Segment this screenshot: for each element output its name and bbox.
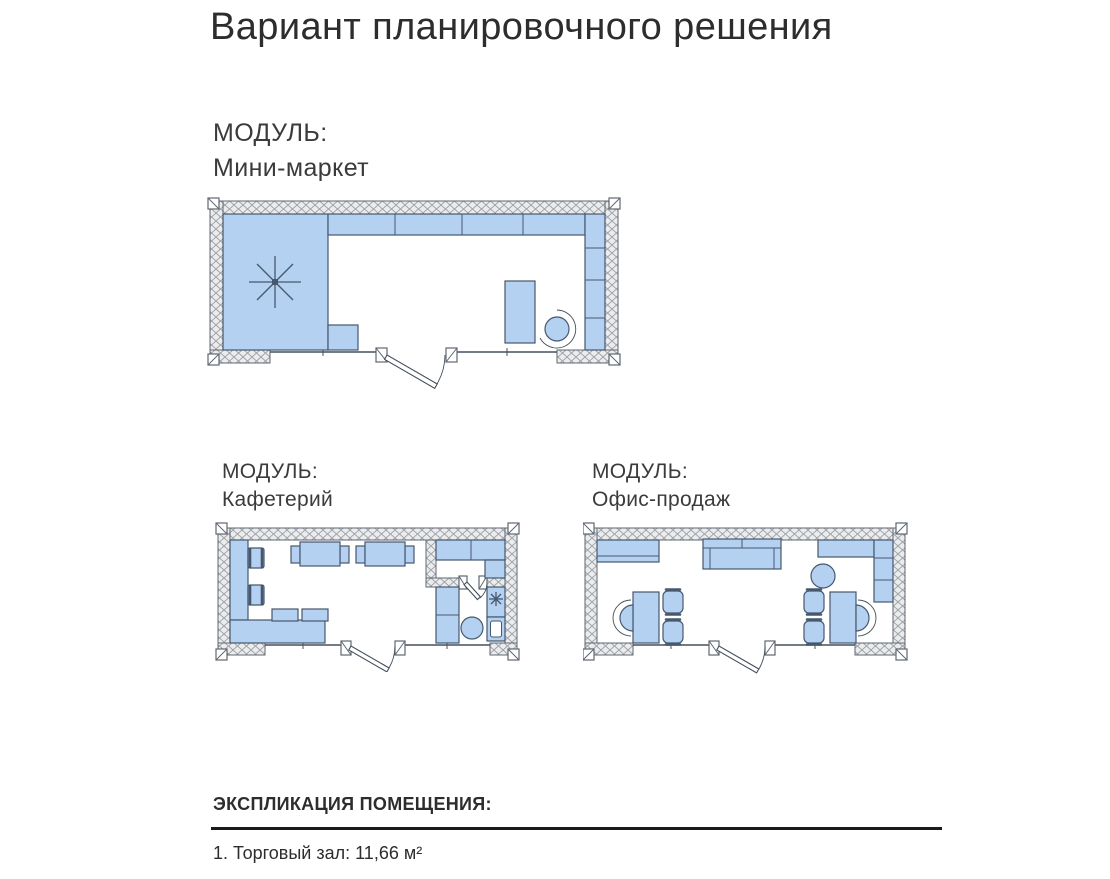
- bar-chair: [248, 585, 264, 605]
- entrance-door: [376, 348, 457, 388]
- explication-item: 1. Торговый зал: 11,66 м²: [213, 843, 422, 864]
- kitchen-counter-top: [436, 540, 505, 578]
- module-label-mini-market: МОДУЛЬ: Мини-маркет: [213, 116, 369, 186]
- visitor-chair: [804, 620, 824, 645]
- cashier-chair: [540, 310, 576, 348]
- explication-heading: ЭКСПЛИКАЦИЯ ПОМЕЩЕНИЯ:: [213, 794, 492, 815]
- shelving-right: [585, 214, 605, 350]
- entrance-door: [341, 641, 405, 672]
- coffee-table: [811, 564, 835, 588]
- wall-cabinet: [597, 540, 659, 562]
- visitor-chair: [804, 590, 824, 615]
- sofa: [703, 539, 781, 569]
- cafe-table: [291, 542, 349, 566]
- floor-plan-cafeteria: [215, 522, 525, 672]
- shelving-top: [328, 214, 585, 235]
- module-prefix: МОДУЛЬ:: [222, 458, 333, 486]
- entrance-door: [709, 641, 775, 673]
- module-prefix: МОДУЛЬ:: [213, 116, 369, 151]
- bar-chair: [248, 548, 264, 568]
- stool: [302, 609, 328, 621]
- floor-plan-mini-market: [207, 197, 621, 397]
- sink: [487, 617, 505, 641]
- manager-desk-left: [613, 590, 683, 645]
- light-fixture-symbol: [489, 592, 503, 606]
- stool: [272, 609, 298, 621]
- module-name: Офис-продаж: [592, 486, 730, 514]
- module-name: Мини-маркет: [213, 151, 369, 186]
- visitor-chair: [663, 590, 683, 615]
- kitchen-table: [461, 617, 483, 639]
- counter-block: [328, 325, 358, 350]
- module-label-sales-office: МОДУЛЬ: Офис-продаж: [592, 458, 730, 514]
- office-chair: [856, 605, 869, 631]
- manager-desk-right: [804, 590, 876, 645]
- explication-rule: [211, 827, 942, 830]
- page-title: Вариант планировочного решения: [210, 6, 833, 49]
- cafe-table: [356, 542, 414, 566]
- module-name: Кафетерий: [222, 486, 333, 514]
- page: Вариант планировочного решения МОДУЛЬ: М…: [0, 0, 1110, 879]
- floor-plan-sales-office: [583, 522, 908, 674]
- module-prefix: МОДУЛЬ:: [592, 458, 730, 486]
- cashier-desk: [505, 281, 535, 343]
- visitor-chair: [663, 620, 683, 645]
- module-label-cafeteria: МОДУЛЬ: Кафетерий: [222, 458, 333, 514]
- storage-room: [223, 214, 328, 350]
- kitchen-fridge-unit: [436, 587, 459, 643]
- cooktop-counter: [487, 587, 505, 617]
- office-chair: [620, 605, 633, 631]
